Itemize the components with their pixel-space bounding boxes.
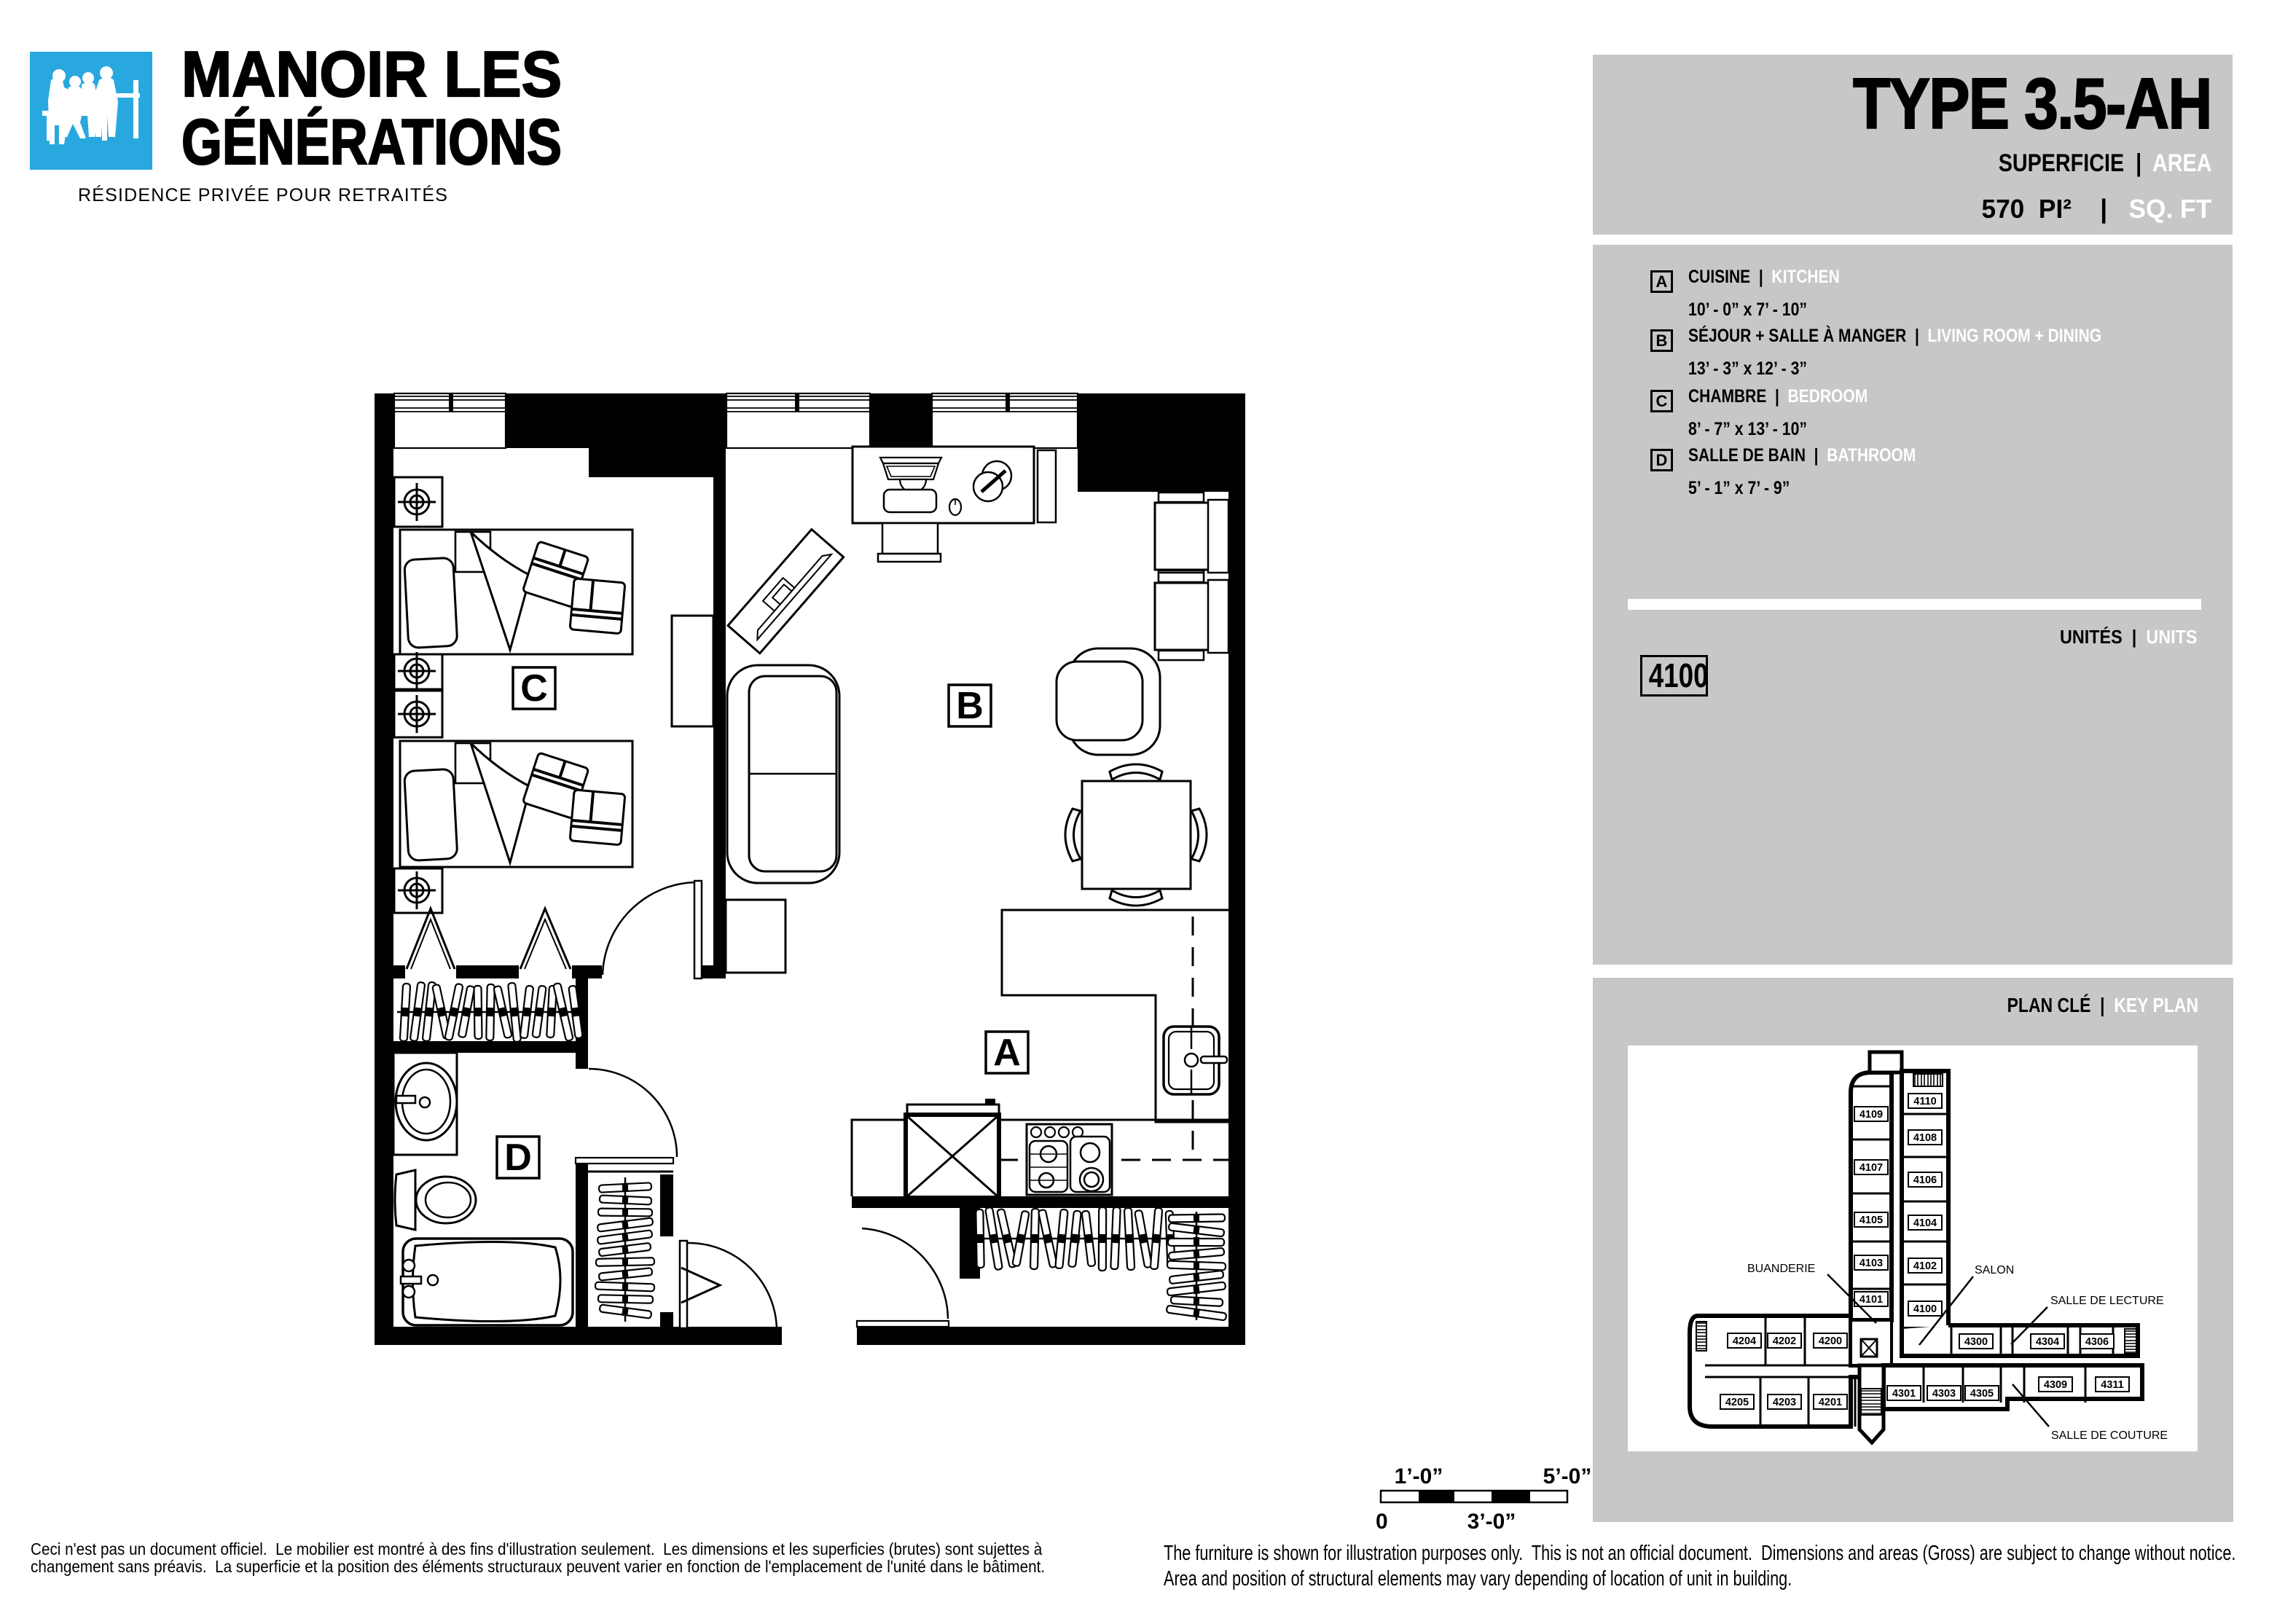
svg-text:4102: 4102 bbox=[1913, 1260, 1937, 1272]
svg-text:4107: 4107 bbox=[1859, 1162, 1883, 1174]
svg-text:4300: 4300 bbox=[1964, 1336, 1988, 1348]
svg-text:C: C bbox=[520, 667, 548, 710]
svg-text:0: 0 bbox=[1376, 1510, 1388, 1534]
svg-text:4204: 4204 bbox=[1733, 1335, 1756, 1347]
svg-text:4106: 4106 bbox=[1913, 1174, 1937, 1186]
svg-text:SALLE DE LECTURE: SALLE DE LECTURE bbox=[2050, 1295, 2164, 1307]
svg-text:3’-0”: 3’-0” bbox=[1467, 1510, 1516, 1534]
svg-text:1’-0”: 1’-0” bbox=[1395, 1464, 1443, 1488]
svg-text:4103: 4103 bbox=[1859, 1258, 1883, 1269]
svg-text:4303: 4303 bbox=[1932, 1388, 1956, 1400]
svg-text:4200: 4200 bbox=[1819, 1335, 1842, 1347]
svg-text:4304: 4304 bbox=[2036, 1336, 2059, 1348]
svg-text:4309: 4309 bbox=[2044, 1379, 2067, 1391]
svg-text:4105: 4105 bbox=[1859, 1215, 1883, 1226]
svg-text:4202: 4202 bbox=[1773, 1335, 1796, 1347]
svg-text:4108: 4108 bbox=[1913, 1132, 1937, 1144]
svg-text:4203: 4203 bbox=[1773, 1397, 1796, 1408]
svg-text:4201: 4201 bbox=[1819, 1397, 1842, 1408]
svg-text:4110: 4110 bbox=[1913, 1096, 1936, 1107]
svg-text:4205: 4205 bbox=[1725, 1397, 1749, 1408]
svg-text:B: B bbox=[956, 685, 984, 727]
svg-text:4305: 4305 bbox=[1970, 1388, 1994, 1400]
svg-text:4100: 4100 bbox=[1913, 1303, 1937, 1315]
svg-text:D: D bbox=[504, 1137, 532, 1179]
svg-text:SALON: SALON bbox=[1975, 1264, 2014, 1276]
svg-text:5’-0”: 5’-0” bbox=[1543, 1464, 1592, 1488]
svg-text:BUANDERIE: BUANDERIE bbox=[1747, 1263, 1815, 1275]
svg-text:4104: 4104 bbox=[1913, 1217, 1937, 1229]
svg-text:4311: 4311 bbox=[2101, 1379, 2123, 1391]
svg-text:4301: 4301 bbox=[1892, 1388, 1916, 1400]
svg-text:4306: 4306 bbox=[2085, 1336, 2109, 1348]
svg-text:4101: 4101 bbox=[1859, 1294, 1883, 1306]
svg-text:A: A bbox=[993, 1032, 1021, 1074]
svg-text:4109: 4109 bbox=[1859, 1109, 1883, 1121]
svg-text:SALLE DE COUTURE: SALLE DE COUTURE bbox=[2051, 1429, 2168, 1442]
